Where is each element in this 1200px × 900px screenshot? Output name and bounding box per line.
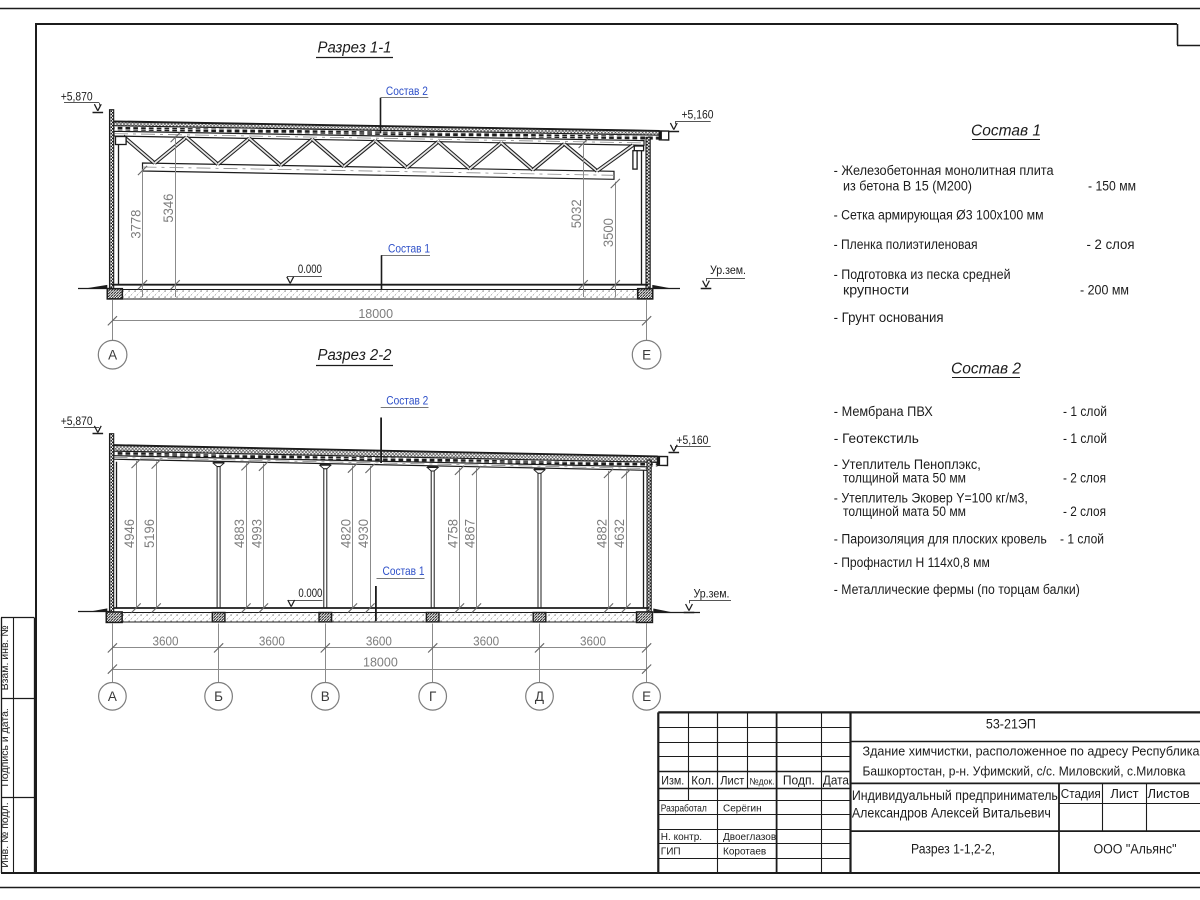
svg-text:5196: 5196 [142, 519, 157, 548]
svg-text:Е: Е [642, 689, 651, 704]
svg-text:Листов: Листов [1147, 786, 1189, 801]
svg-text:- 1 слой: - 1 слой [1060, 532, 1104, 547]
svg-text:3600: 3600 [153, 634, 179, 648]
svg-text:А: А [108, 689, 117, 704]
svg-text:толщиной мата 50 мм: толщиной мата 50 мм [843, 504, 966, 519]
svg-text:0.000: 0.000 [298, 262, 322, 276]
svg-text:- 150 мм: - 150 мм [1088, 179, 1136, 194]
svg-text:4883: 4883 [232, 519, 247, 548]
svg-text:ООО "Альянс": ООО "Альянс" [1094, 842, 1177, 857]
svg-text:- 2 слоя: - 2 слоя [1087, 237, 1135, 252]
svg-text:- 1 слой: - 1 слой [1063, 404, 1107, 419]
svg-text:Разработал: Разработал [661, 802, 707, 814]
svg-text:Здание химчистки, расположенн: Здание химчистки, расположенное по адрес… [863, 745, 1200, 759]
svg-text:0.000: 0.000 [298, 586, 322, 600]
svg-text:Лист: Лист [1110, 786, 1138, 801]
svg-text:Стадия: Стадия [1061, 786, 1101, 801]
svg-text:3778: 3778 [128, 210, 143, 239]
svg-text:ГИП: ГИП [661, 847, 681, 858]
svg-text:- Сетка армирующая Ø3 100х100: - Сетка армирующая Ø3 100х100 мм [834, 208, 1044, 223]
svg-text:3600: 3600 [366, 634, 392, 648]
svg-text:Состав 2: Состав 2 [951, 361, 1021, 378]
svg-text:Взам. инв. №: Взам. инв. № [0, 625, 11, 690]
svg-text:Коротаев: Коротаев [723, 847, 766, 858]
svg-text:Состав 1: Состав 1 [971, 123, 1041, 140]
svg-text:- Пароизоляция для плоских кро: - Пароизоляция для плоских кровель [834, 532, 1047, 547]
svg-text:Двоеглазов: Двоеглазов [723, 832, 776, 843]
svg-text:4946: 4946 [122, 519, 137, 548]
svg-text:4882: 4882 [594, 519, 609, 548]
svg-text:№док.: №док. [750, 777, 775, 788]
svg-text:Подпись и дата.: Подпись и дата. [0, 708, 11, 786]
svg-text:- Подготовка из песка средней: - Подготовка из песка средней [834, 267, 1011, 282]
svg-text:Дата: Дата [823, 773, 849, 787]
svg-text:3500: 3500 [601, 218, 616, 247]
svg-text:Серёгин: Серёгин [723, 803, 762, 814]
svg-text:4867: 4867 [462, 519, 477, 548]
svg-text:Состав 2: Состав 2 [386, 84, 428, 98]
svg-text:- Металлические фермы (по торц: - Металлические фермы (по торцам балки) [834, 582, 1080, 597]
svg-text:- 1 слой: - 1 слой [1063, 431, 1107, 446]
svg-text:Г: Г [429, 689, 437, 704]
svg-text:- 2 слоя: - 2 слоя [1063, 471, 1106, 486]
svg-text:Башкортостан, р-н. Уфимский, с: Башкортостан, р-н. Уфимский, с/с. Миловс… [863, 765, 1186, 779]
svg-text:Состав 2: Состав 2 [386, 393, 428, 407]
svg-text:- Геотекстиль: - Геотекстиль [834, 431, 919, 446]
svg-text:- Мембрана ПВХ: - Мембрана ПВХ [834, 404, 933, 419]
svg-text:4820: 4820 [338, 519, 353, 548]
svg-text:Ур.зем.: Ур.зем. [710, 263, 746, 277]
svg-text:4632: 4632 [612, 519, 627, 548]
svg-text:Состав 1: Состав 1 [383, 564, 425, 578]
svg-text:5032: 5032 [569, 199, 584, 228]
svg-text:3600: 3600 [580, 634, 606, 648]
svg-text:53-21ЭП: 53-21ЭП [986, 717, 1036, 732]
svg-text:Е: Е [642, 348, 651, 363]
svg-text:- Железобетонная монолитная п: - Железобетонная монолитная плита [834, 163, 1054, 178]
svg-text:- 200 мм: - 200 мм [1080, 283, 1129, 298]
svg-text:Н. контр.: Н. контр. [661, 832, 702, 843]
svg-text:Б: Б [214, 689, 223, 704]
svg-text:Разрез 1-1,2-2,: Разрез 1-1,2-2, [911, 842, 995, 857]
svg-text:крупности: крупности [843, 283, 909, 298]
svg-text:Инв. № подл.: Инв. № подл. [0, 802, 11, 867]
svg-text:+5,160: +5,160 [682, 108, 714, 122]
svg-text:+5,160: +5,160 [676, 433, 708, 447]
svg-text:Разрез 1-1: Разрез 1-1 [318, 40, 392, 57]
svg-text:Кол.: Кол. [691, 773, 714, 787]
svg-text:3600: 3600 [259, 634, 285, 648]
svg-text:4993: 4993 [249, 519, 264, 548]
svg-text:Состав 1: Состав 1 [388, 241, 430, 255]
svg-text:Александров Алексей Витальевич: Александров Алексей Витальевич [852, 805, 1051, 820]
svg-text:- Грунт основания: - Грунт основания [834, 310, 944, 325]
svg-text:Лист: Лист [720, 773, 744, 787]
svg-text:18000: 18000 [358, 307, 393, 321]
svg-text:3600: 3600 [473, 634, 499, 648]
svg-text:Д: Д [535, 689, 544, 704]
svg-text:5346: 5346 [161, 194, 176, 223]
svg-text:4758: 4758 [445, 519, 460, 548]
svg-text:- Пленка полиэтиленовая: - Пленка полиэтиленовая [834, 237, 978, 252]
svg-text:+5,870: +5,870 [61, 414, 93, 428]
svg-text:Разрез 2-2: Разрез 2-2 [318, 347, 392, 364]
svg-text:18000: 18000 [363, 656, 398, 670]
svg-text:А: А [108, 348, 117, 363]
svg-text:Индивидуальный предприниматель: Индивидуальный предприниматель [852, 788, 1058, 803]
svg-text:из бетона В 15 (М200): из бетона В 15 (М200) [843, 179, 972, 194]
svg-text:В: В [321, 689, 330, 704]
svg-text:- 2 слоя: - 2 слоя [1063, 504, 1106, 519]
svg-text:- Профнастил Н 114х0,8 мм: - Профнастил Н 114х0,8 мм [834, 555, 990, 570]
svg-text:Подп.: Подп. [783, 773, 815, 787]
svg-text:толщиной мата 50 мм: толщиной мата 50 мм [843, 471, 966, 486]
svg-text:+5,870: +5,870 [61, 89, 93, 103]
svg-text:Ур.зем.: Ур.зем. [694, 587, 730, 601]
svg-text:Изм.: Изм. [661, 773, 684, 787]
svg-text:4930: 4930 [356, 519, 371, 548]
